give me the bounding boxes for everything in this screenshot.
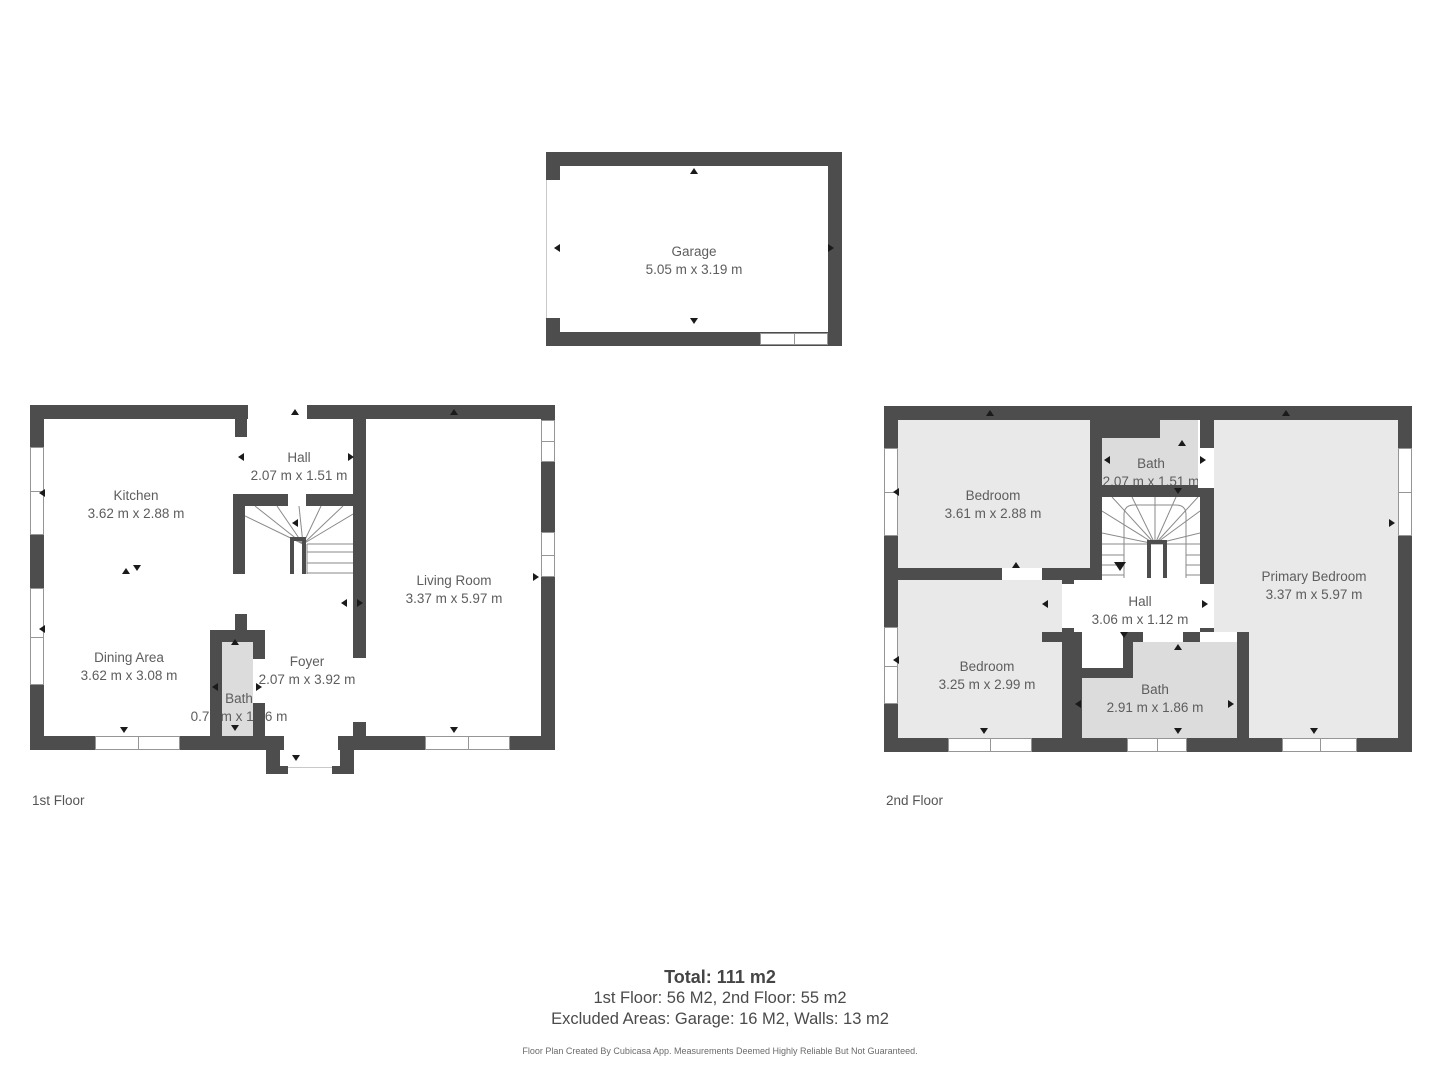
door-arrow-icon bbox=[1202, 600, 1208, 608]
room-label-primary-bedroom: Primary Bedroom 3.37 m x 5.97 m bbox=[1261, 568, 1366, 604]
room-label-hall-2f: Hall 3.06 m x 1.12 m bbox=[1092, 593, 1189, 629]
room-name: Bath bbox=[1107, 681, 1204, 699]
summary-floors: 1st Floor: 56 M2, 2nd Floor: 55 m2 bbox=[0, 988, 1440, 1009]
door-arrow-icon bbox=[231, 639, 239, 645]
wall bbox=[1042, 632, 1074, 642]
door-arrow-icon bbox=[893, 488, 899, 496]
room-name: Dining Area bbox=[81, 649, 178, 667]
room-name: Hall bbox=[1092, 593, 1189, 611]
room-label-bedroom-1: Bedroom 3.61 m x 2.88 m bbox=[945, 487, 1042, 523]
door-arrow-icon bbox=[828, 244, 834, 252]
window bbox=[884, 627, 898, 704]
room-dims: 3.25 m x 2.99 m bbox=[939, 676, 1036, 694]
room-dims: 3.37 m x 5.97 m bbox=[406, 590, 503, 608]
window bbox=[425, 736, 510, 750]
summary-total: Total: 111 m2 bbox=[0, 966, 1440, 988]
room-name: Bedroom bbox=[945, 487, 1042, 505]
room-name: Living Room bbox=[406, 572, 503, 590]
door-arrow-icon bbox=[39, 489, 45, 497]
primary-bedroom-fill bbox=[1247, 632, 1398, 738]
wall-bulkhead bbox=[1102, 420, 1160, 438]
door-opening bbox=[288, 494, 306, 506]
door-arrow-icon bbox=[450, 727, 458, 733]
door-arrow-icon bbox=[533, 573, 539, 581]
wall bbox=[1237, 632, 1249, 752]
wall bbox=[1090, 420, 1102, 578]
wall bbox=[353, 722, 366, 736]
door-arrow-icon bbox=[1200, 456, 1206, 464]
garage-side-door bbox=[760, 333, 828, 345]
room-dims: 3.61 m x 2.88 m bbox=[945, 505, 1042, 523]
window bbox=[948, 738, 1032, 752]
room-dims: 3.62 m x 2.88 m bbox=[88, 505, 185, 523]
room-dims: 3.06 m x 1.12 m bbox=[1092, 611, 1189, 629]
door-arrow-icon bbox=[212, 683, 218, 691]
window bbox=[30, 588, 44, 685]
door-arrow-icon bbox=[291, 409, 299, 415]
summary-excluded: Excluded Areas: Garage: 16 M2, Walls: 13… bbox=[0, 1009, 1440, 1030]
wall bbox=[1072, 668, 1133, 678]
door-arrow-icon bbox=[1389, 519, 1395, 527]
room-name: Bath bbox=[191, 690, 288, 708]
door-arrow-icon bbox=[1282, 410, 1290, 416]
room-label-bedroom-2: Bedroom 3.25 m x 2.99 m bbox=[939, 658, 1036, 694]
door-arrow-icon bbox=[341, 599, 347, 607]
door-arrow-icon bbox=[1174, 644, 1182, 650]
caption-second-floor: 2nd Floor bbox=[886, 793, 943, 808]
room-dims: 2.07 m x 3.92 m bbox=[259, 671, 356, 689]
wall bbox=[884, 406, 1412, 420]
window bbox=[1282, 738, 1357, 752]
wall bbox=[1090, 485, 1214, 497]
room-dims: 3.37 m x 5.97 m bbox=[1261, 586, 1366, 604]
door-arrow-icon bbox=[1042, 600, 1048, 608]
door-arrow-icon bbox=[122, 568, 130, 574]
door-arrow-icon bbox=[1178, 440, 1186, 446]
door-arrow-icon bbox=[1120, 632, 1128, 638]
door-arrow-icon bbox=[133, 565, 141, 571]
window bbox=[541, 532, 555, 577]
first-floor-plan: Kitchen 3.62 m x 2.88 m Hall 2.07 m x 1.… bbox=[30, 405, 555, 750]
wall bbox=[353, 405, 366, 658]
closet-fill bbox=[1082, 642, 1123, 668]
caption-first-floor: 1st Floor bbox=[32, 793, 85, 808]
door-arrow-icon bbox=[238, 453, 244, 461]
room-dims: 0.77 m x 1.96 m bbox=[191, 708, 288, 726]
summary-disclaimer: Floor Plan Created By Cubicasa App. Meas… bbox=[0, 1046, 1440, 1056]
room-dims: 5.05 m x 3.19 m bbox=[646, 261, 743, 279]
entry-threshold-line bbox=[288, 767, 332, 768]
wall bbox=[253, 630, 265, 659]
room-label-garage: Garage 5.05 m x 3.19 m bbox=[646, 243, 743, 279]
porch-wall bbox=[340, 742, 354, 774]
summary-block: Total: 111 m2 1st Floor: 56 M2, 2nd Floo… bbox=[0, 966, 1440, 1056]
room-label-dining-area: Dining Area 3.62 m x 3.08 m bbox=[81, 649, 178, 685]
door-arrow-icon bbox=[256, 683, 262, 691]
door-arrow-icon bbox=[1012, 562, 1020, 568]
door-arrow-icon bbox=[986, 410, 994, 416]
room-name: Hall bbox=[251, 449, 348, 467]
door-arrow-icon bbox=[1174, 488, 1182, 494]
second-floor-plan: Bedroom 3.61 m x 2.88 m Bath 2.07 m x 1.… bbox=[884, 406, 1412, 752]
door-arrow-icon bbox=[1310, 728, 1318, 734]
door-opening bbox=[284, 736, 338, 750]
room-name: Bedroom bbox=[939, 658, 1036, 676]
window bbox=[541, 420, 555, 462]
wall bbox=[233, 506, 245, 574]
stair-direction-arrow-icon bbox=[292, 519, 298, 527]
stair-direction-arrow-icon bbox=[1114, 562, 1126, 571]
door-arrow-icon bbox=[231, 725, 239, 731]
door-arrow-icon bbox=[1075, 700, 1081, 708]
porch-wall bbox=[332, 766, 340, 774]
wall bbox=[1183, 632, 1200, 642]
door-arrow-icon bbox=[1228, 700, 1234, 708]
door-arrow-icon bbox=[1174, 728, 1182, 734]
wall-stub bbox=[546, 318, 560, 332]
door-arrow-icon bbox=[893, 656, 899, 664]
door-arrow-icon bbox=[690, 168, 698, 174]
room-name: Foyer bbox=[259, 653, 356, 671]
garage-plan: Garage 5.05 m x 3.19 m bbox=[546, 152, 842, 346]
room-dims: 2.07 m x 1.51 m bbox=[251, 467, 348, 485]
door-arrow-icon bbox=[120, 727, 128, 733]
porch-wall bbox=[280, 766, 288, 774]
door-opening bbox=[1062, 584, 1074, 628]
wall bbox=[546, 152, 842, 166]
room-name: Primary Bedroom bbox=[1261, 568, 1366, 586]
window bbox=[1398, 448, 1412, 536]
room-label-bath-bottom: Bath 2.91 m x 1.86 m bbox=[1107, 681, 1204, 717]
wall-stub bbox=[546, 166, 560, 180]
wall bbox=[884, 568, 1102, 580]
door-arrow-icon bbox=[348, 453, 354, 461]
room-label-foyer: Foyer 2.07 m x 3.92 m bbox=[259, 653, 356, 689]
staircase bbox=[245, 506, 353, 574]
room-dims: 3.62 m x 3.08 m bbox=[81, 667, 178, 685]
floor-plan-canvas: Garage 5.05 m x 3.19 m bbox=[0, 0, 1440, 1080]
room-name: Kitchen bbox=[88, 487, 185, 505]
room-label-living-room: Living Room 3.37 m x 5.97 m bbox=[406, 572, 503, 608]
porch-wall bbox=[266, 742, 280, 774]
window bbox=[1127, 738, 1187, 752]
window bbox=[95, 736, 180, 750]
door-opening bbox=[1002, 568, 1042, 580]
door-arrow-icon bbox=[357, 599, 363, 607]
door-arrow-icon bbox=[554, 244, 560, 252]
wall bbox=[253, 703, 265, 741]
wall bbox=[235, 405, 247, 437]
room-label-hall: Hall 2.07 m x 1.51 m bbox=[251, 449, 348, 485]
room-label-bath: Bath 0.77 m x 1.96 m bbox=[191, 690, 288, 726]
room-name: Garage bbox=[646, 243, 743, 261]
garage-door-opening-line bbox=[546, 180, 547, 318]
wall bbox=[1133, 632, 1143, 642]
room-dims: 2.91 m x 1.86 m bbox=[1107, 699, 1204, 717]
room-name: Bath bbox=[1103, 455, 1200, 473]
wall-stub bbox=[235, 614, 247, 630]
door-arrow-icon bbox=[1104, 456, 1110, 464]
door-arrow-icon bbox=[39, 625, 45, 633]
wall bbox=[1072, 632, 1082, 752]
room-label-kitchen: Kitchen 3.62 m x 2.88 m bbox=[88, 487, 185, 523]
door-arrow-icon bbox=[450, 409, 458, 415]
door-opening bbox=[1198, 448, 1214, 488]
door-arrow-icon bbox=[292, 755, 300, 761]
door-arrow-icon bbox=[690, 318, 698, 324]
door-arrow-icon bbox=[980, 728, 988, 734]
